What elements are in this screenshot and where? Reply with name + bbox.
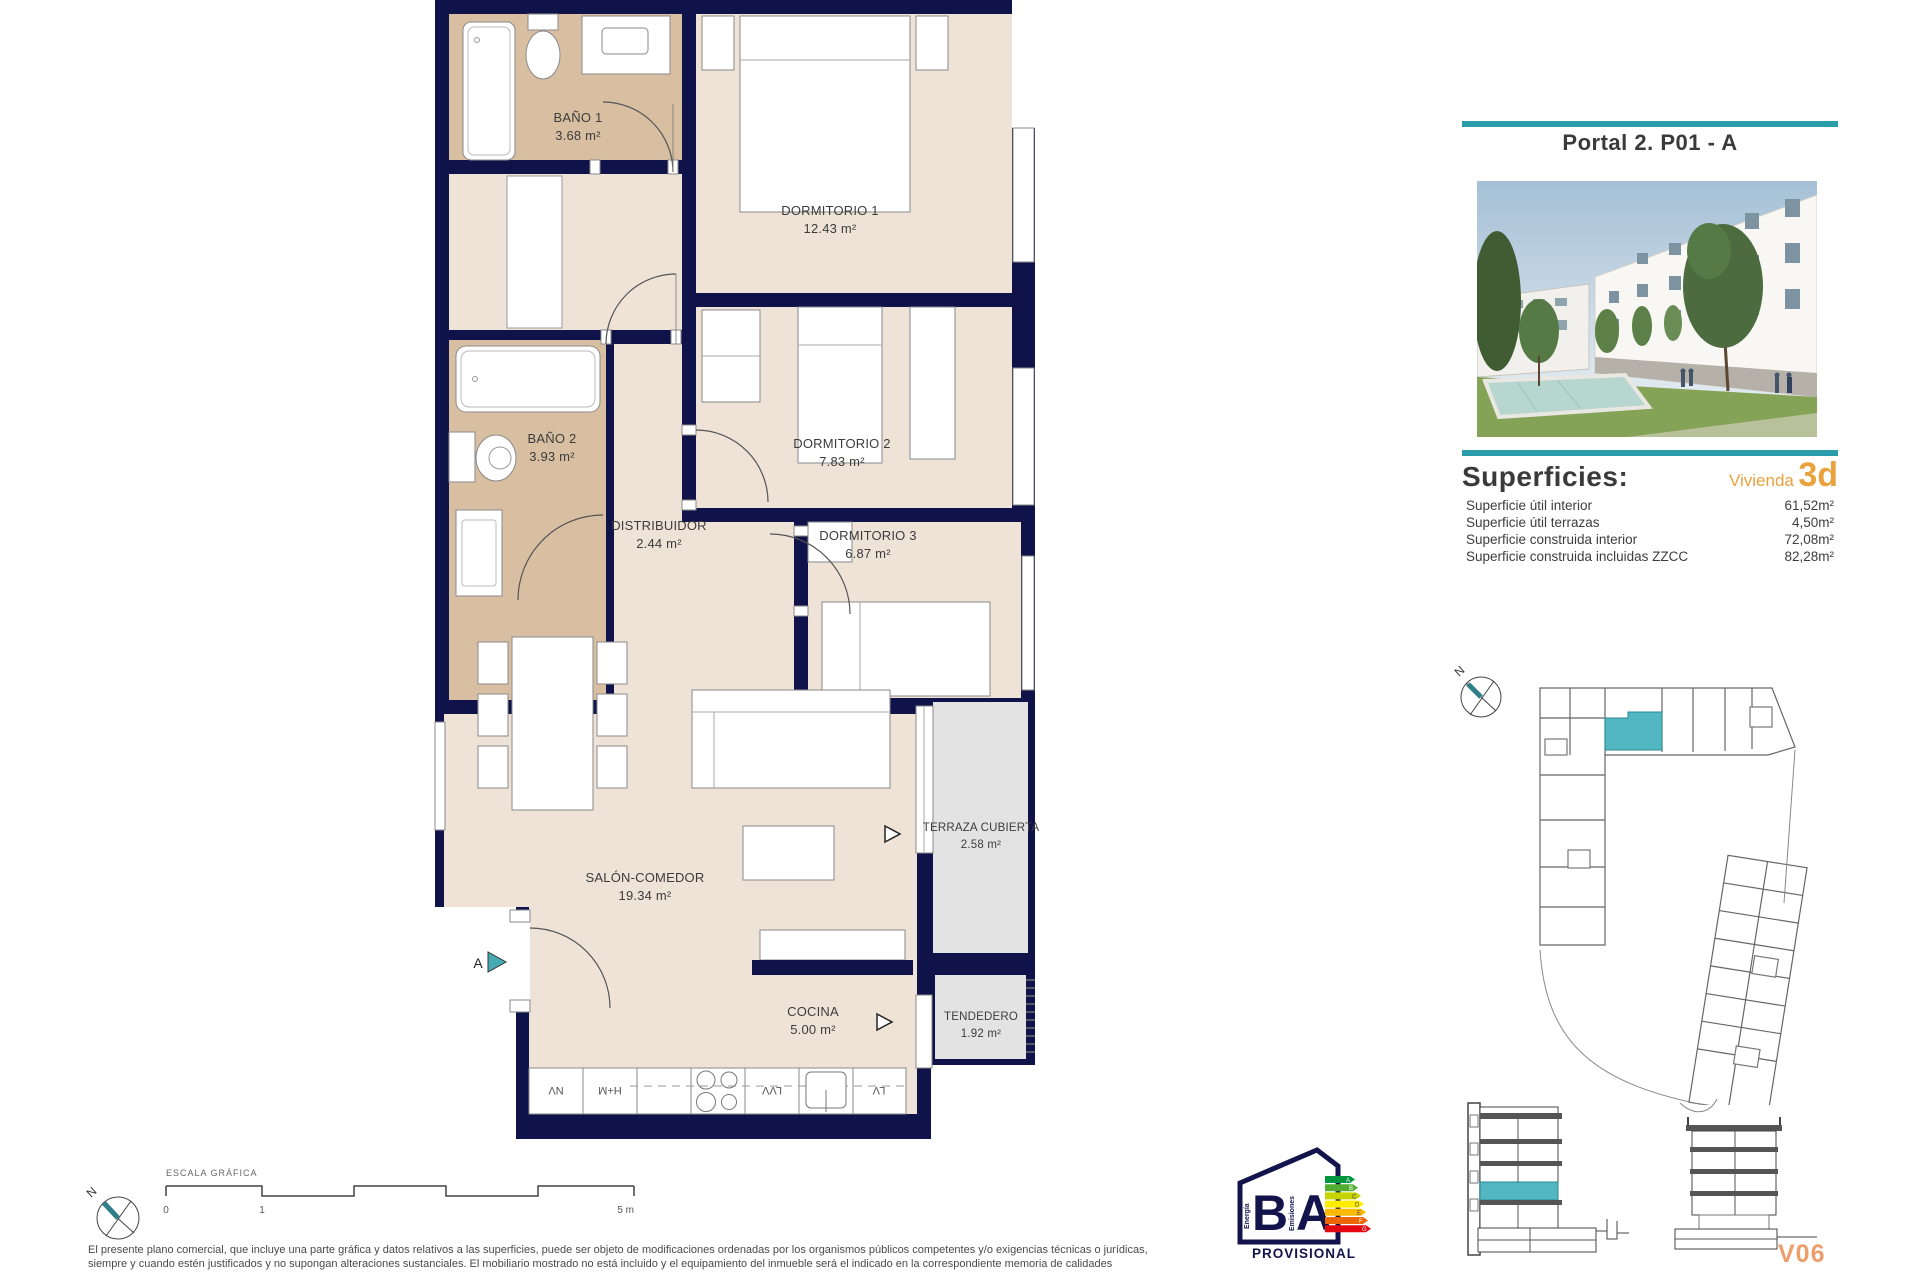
superficies-row-value: 72,08m² <box>1784 532 1834 547</box>
room-label-distribuidor: DISTRIBUIDOR <box>611 518 707 533</box>
vivienda-tag: Vivienda 3d <box>1729 456 1838 495</box>
energy-scale-letter: B <box>1349 1186 1353 1192</box>
vivienda-label: Vivienda <box>1729 471 1794 490</box>
chair <box>597 642 627 684</box>
room-label-salon: SALÓN-COMEDOR <box>586 870 705 885</box>
superficies-row-label: Superficie construida incluidas ZZCC <box>1466 549 1688 564</box>
kitchen-counter: NV H+M LVV LV <box>529 1068 906 1114</box>
scale-tick-0: 0 <box>163 1205 169 1216</box>
room-area-terraza: 2.58 m² <box>961 839 1001 851</box>
superficies-title: Superficies: <box>1462 461 1628 493</box>
superficies-row-value: 4,50m² <box>1792 515 1834 530</box>
floor-plan: NV H+M LVV LV <box>430 0 1040 1145</box>
sink-2 <box>476 435 516 481</box>
room-label-tendedero: TENDEDERO <box>944 1011 1018 1023</box>
superficies-row-value: 82,28m² <box>1784 549 1834 564</box>
energy-scale-letter: C <box>1352 1194 1357 1200</box>
energy-scale-letter: G <box>1362 1227 1367 1233</box>
hall-closet <box>507 176 562 328</box>
tv-bench <box>760 930 905 960</box>
energy-scale-letter: E <box>1357 1211 1361 1217</box>
bed-1 <box>740 16 910 212</box>
page-title: Portal 2. P01 - A <box>1462 130 1838 156</box>
room-area-tendedero: 1.92 m² <box>961 1028 1001 1040</box>
scale-bar <box>166 1186 634 1196</box>
bathtub-1 <box>463 22 515 160</box>
project-render-photo <box>1477 181 1817 437</box>
superficies-row-label: Superficie útil interior <box>1466 498 1592 513</box>
superficies-row-label: Superficie útil terrazas <box>1466 515 1600 530</box>
scale-bar-title: ESCALA GRÁFICA <box>166 1168 258 1178</box>
energy-scale-letter: A <box>1346 1178 1350 1184</box>
page: NV H+M LVV LV <box>0 0 1920 1280</box>
coffee-table <box>743 826 834 880</box>
chair <box>597 694 627 736</box>
room-label-terraza: TERRAZA CUBIERTA <box>923 822 1040 834</box>
room-label-dorm3: DORMITORIO 3 <box>819 528 917 543</box>
superficies-row-value: 61,52m² <box>1784 498 1834 513</box>
bed-3 <box>822 602 990 696</box>
window-dorm3 <box>1022 556 1034 690</box>
superficies-row: Superficie construida incluidas ZZCC 82,… <box>1466 549 1834 566</box>
window-salon-left <box>435 722 445 830</box>
section-left <box>1468 1103 1629 1255</box>
appliance-label-nv: NV <box>548 1084 564 1096</box>
toilet-1 <box>526 31 560 79</box>
room-area-salon: 19.34 m² <box>619 888 672 903</box>
room-label-dorm2: DORMITORIO 2 <box>793 436 891 451</box>
room-area-bano1: 3.68 m² <box>555 128 601 143</box>
appliance-label-lvv: LVV <box>761 1084 782 1096</box>
site-building-se <box>1689 855 1807 1105</box>
energy-provisional-label: PROVISIONAL <box>1252 1246 1356 1261</box>
room-label-dorm1: DORMITORIO 1 <box>781 203 879 218</box>
chair <box>478 694 508 736</box>
floor-corridor <box>614 344 682 522</box>
room-label-cocina: COCINA <box>787 1004 839 1019</box>
desk-2 <box>910 307 955 459</box>
energy-energia-label: Energía <box>1244 1203 1251 1229</box>
sink-1-basin <box>602 28 648 54</box>
section-right <box>1675 1099 1817 1249</box>
superficies-row: Superficie construida interior 72,08m² <box>1466 532 1834 549</box>
vivienda-type: 3d <box>1798 456 1838 494</box>
scale-tick-5: 5 m <box>617 1205 634 1216</box>
plan-compass: N <box>85 1184 139 1239</box>
superficies-header: Superficies: Vivienda 3d <box>1462 461 1838 497</box>
window-dorm1 <box>1013 128 1034 262</box>
section-marker-label: A <box>473 955 483 971</box>
teal-rule-top <box>1462 121 1838 127</box>
energy-rating-logo: B A Energía Emisiones A B C D E F G PROV… <box>1222 1138 1374 1266</box>
room-area-dorm3: 6.87 m² <box>845 546 891 561</box>
room-label-bano1: BAÑO 1 <box>554 110 603 125</box>
disclaimer-line2: siempre y cuando estén justificados y no… <box>88 1257 1243 1271</box>
scale-tick-1: 1 <box>259 1205 265 1216</box>
sofa <box>692 690 890 788</box>
toilet-1-tank <box>528 14 558 30</box>
door-salon-opening <box>515 922 530 1006</box>
appliance-label-lv: LV <box>872 1084 885 1096</box>
plan-code: V06 <box>1778 1240 1825 1269</box>
section-marker-triangle <box>488 952 506 972</box>
sink-icon <box>806 1072 846 1112</box>
superficies-row: Superficie útil terrazas 4,50m² <box>1466 515 1834 532</box>
superficies-row: Superficie útil interior 61,52m² <box>1466 498 1834 515</box>
site-compass: N <box>1452 663 1501 717</box>
window-cocina-tendedero <box>916 995 932 1068</box>
site-unit-highlight <box>1605 712 1662 750</box>
compass-n-label: N <box>85 1184 99 1200</box>
room-area-distribuidor: 2.44 m² <box>636 536 682 551</box>
toilet-2 <box>449 432 475 482</box>
nightstand-1a <box>702 16 734 70</box>
chair <box>478 642 508 684</box>
superficies-row-label: Superficie construida interior <box>1466 532 1637 547</box>
floor-hall <box>449 174 682 330</box>
compass-n-label: N <box>1452 663 1468 679</box>
disclaimer: El presente plano comercial, que incluye… <box>88 1243 1243 1271</box>
room-area-dorm2: 7.83 m² <box>819 454 865 469</box>
shower-2 <box>456 510 502 596</box>
site-key-plan: N <box>1450 655 1850 1105</box>
chair <box>597 746 627 788</box>
dining-table <box>512 637 593 810</box>
window-dorm2 <box>1013 368 1034 505</box>
room-label-bano2: BAÑO 2 <box>528 431 577 446</box>
appliance-label-hm: H+M <box>598 1084 622 1096</box>
energy-scale-letter: D <box>1355 1203 1360 1209</box>
room-area-dorm1: 12.43 m² <box>804 221 857 236</box>
nightstand-1b <box>916 16 948 70</box>
energy-letter-b: B <box>1252 1185 1288 1241</box>
room-area-cocina: 5.00 m² <box>790 1022 836 1037</box>
energy-emisiones-label: Emisiones <box>1289 1196 1296 1231</box>
chair <box>478 746 508 788</box>
wall-salon-cocina <box>752 960 913 975</box>
disclaimer-line1: El presente plano comercial, que incluye… <box>88 1243 1243 1257</box>
section-unit-highlight <box>1480 1182 1558 1200</box>
energy-scale-letter: F <box>1359 1219 1363 1225</box>
room-area-bano2: 3.93 m² <box>529 449 575 464</box>
